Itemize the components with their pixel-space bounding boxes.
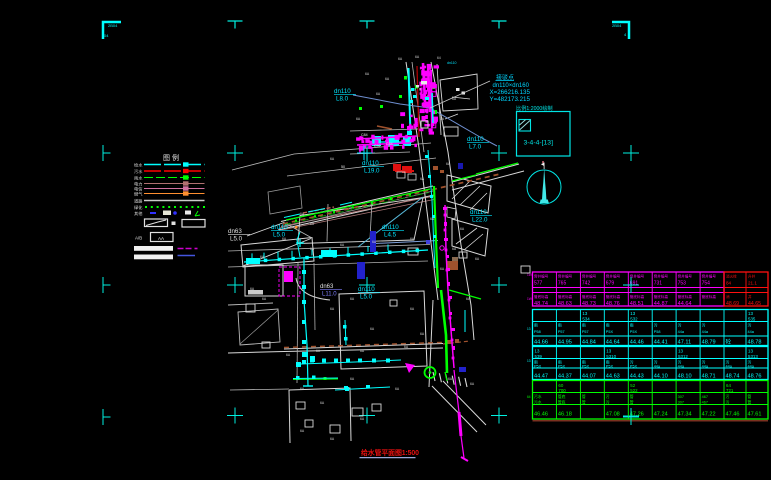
svg-text:雨: 雨 xyxy=(558,323,562,328)
svg-text:X=266216.135: X=266216.135 xyxy=(490,89,531,96)
svg-text:砼: 砼 xyxy=(726,338,732,346)
svg-text:721: 721 xyxy=(726,388,734,393)
svg-text:44a: 44a xyxy=(702,364,709,368)
svg-text:44.64: 44.64 xyxy=(606,340,620,346)
svg-text:44a: 44a xyxy=(726,364,733,368)
svg-text:13: 13 xyxy=(748,349,753,354)
svg-text:467: 467 xyxy=(702,401,708,405)
svg-text:污水: 污水 xyxy=(534,400,542,405)
svg-text:污: 污 xyxy=(606,400,610,405)
svg-text:13: 13 xyxy=(678,349,683,354)
svg-text:13: 13 xyxy=(527,359,531,363)
svg-text:48.76: 48.76 xyxy=(748,374,762,380)
svg-text:44.07: 44.07 xyxy=(582,374,596,380)
svg-text:管底标高: 管底标高 xyxy=(534,294,549,299)
svg-text:44.37: 44.37 xyxy=(558,374,572,380)
svg-text:P57: P57 xyxy=(558,330,565,334)
svg-text:管底标高: 管底标高 xyxy=(654,294,669,299)
svg-text:污: 污 xyxy=(654,323,658,328)
svg-text:6A: 6A xyxy=(250,287,255,291)
svg-text:307: 307 xyxy=(678,395,684,399)
svg-text:6A: 6A xyxy=(466,297,471,301)
svg-text:污: 污 xyxy=(748,323,752,328)
svg-text:污: 污 xyxy=(606,394,610,399)
svg-text:467: 467 xyxy=(702,395,708,399)
svg-text:48.74: 48.74 xyxy=(534,301,548,307)
svg-text:6A: 6A xyxy=(452,247,457,251)
svg-text:P5X: P5X xyxy=(534,364,542,368)
svg-text:44.65: 44.65 xyxy=(748,301,761,307)
svg-text:管底标高: 管底标高 xyxy=(702,294,717,299)
svg-text:731: 731 xyxy=(654,281,663,287)
svg-text:C92: C92 xyxy=(374,144,381,148)
svg-text:6A: 6A xyxy=(340,243,345,247)
svg-text:其他: 其他 xyxy=(134,210,143,217)
svg-text:44.84: 44.84 xyxy=(582,340,596,346)
svg-text:5310: 5310 xyxy=(606,354,616,359)
svg-text:管: 管 xyxy=(582,394,586,399)
svg-text:6A: 6A xyxy=(395,387,400,391)
svg-text:窨井编号: 窨井编号 xyxy=(582,274,597,279)
svg-text:P5X: P5X xyxy=(606,330,614,334)
svg-text:47.24: 47.24 xyxy=(654,412,668,418)
svg-text:44.46: 44.46 xyxy=(630,340,644,346)
svg-text:P57: P57 xyxy=(582,330,589,334)
svg-text:L22.0: L22.0 xyxy=(472,217,488,224)
svg-text:6A: 6A xyxy=(415,55,420,59)
svg-text:AA: AA xyxy=(158,236,164,241)
svg-text:消: 消 xyxy=(726,294,730,299)
svg-text:44.43: 44.43 xyxy=(630,374,644,380)
svg-text:522: 522 xyxy=(630,388,638,393)
svg-text:84: 84 xyxy=(726,281,732,286)
svg-text:管: 管 xyxy=(748,394,752,399)
svg-text:6A: 6A xyxy=(420,177,425,181)
svg-text:管底标高: 管底标高 xyxy=(582,294,597,299)
svg-text:6A: 6A xyxy=(398,57,403,61)
svg-text:管: 管 xyxy=(630,394,634,399)
svg-text:P5X: P5X xyxy=(630,330,638,334)
svg-text:13: 13 xyxy=(535,349,540,354)
svg-text:6A: 6A xyxy=(262,297,267,301)
svg-text:P5X: P5X xyxy=(630,364,638,368)
svg-text:577: 577 xyxy=(534,281,543,287)
svg-text:21.1: 21.1 xyxy=(748,281,757,286)
svg-text:44.63: 44.63 xyxy=(606,374,620,380)
svg-text:48.76: 48.76 xyxy=(606,301,620,307)
svg-text:1W: 1W xyxy=(527,273,532,277)
svg-text:6A: 6A xyxy=(300,212,305,216)
svg-text:47.34: 47.34 xyxy=(678,412,692,418)
svg-text:6A: 6A xyxy=(365,72,370,76)
svg-text:C84: C84 xyxy=(386,142,393,146)
svg-text:管底标高: 管底标高 xyxy=(558,294,573,299)
svg-text:44a: 44a xyxy=(702,330,709,334)
svg-text:6A: 6A xyxy=(330,157,335,161)
svg-text:6A: 6A xyxy=(350,297,355,301)
svg-text:47.22: 47.22 xyxy=(702,412,716,418)
svg-text:雨: 雨 xyxy=(606,323,610,328)
svg-text:46.46: 46.46 xyxy=(534,412,548,418)
svg-text:井: 井 xyxy=(748,294,752,299)
svg-text:6A: 6A xyxy=(430,217,435,221)
svg-text:6A: 6A xyxy=(376,92,381,96)
svg-text:6A: 6A xyxy=(470,382,475,386)
svg-text:6A: 6A xyxy=(475,257,480,261)
svg-text:48.51: 48.51 xyxy=(630,301,644,307)
svg-text:dn110: dn110 xyxy=(334,88,351,95)
svg-text:雨: 雨 xyxy=(630,323,634,328)
svg-text:3-4-4-[13]: 3-4-4-[13] xyxy=(524,140,554,147)
svg-text:管: 管 xyxy=(630,400,634,405)
svg-text:6A: 6A xyxy=(440,267,445,271)
svg-text:6A: 6A xyxy=(370,327,375,331)
svg-text:管底标高: 管底标高 xyxy=(606,294,621,299)
svg-text:升井: 升井 xyxy=(748,274,756,279)
svg-text:L4.5: L4.5 xyxy=(384,232,397,239)
svg-text:44a: 44a xyxy=(654,364,661,368)
svg-text:A/B: A/B xyxy=(135,236,142,241)
svg-text:47.61: 47.61 xyxy=(748,412,762,418)
svg-text:48.71: 48.71 xyxy=(702,374,716,380)
svg-text:6A: 6A xyxy=(460,227,465,231)
svg-text:44.47: 44.47 xyxy=(534,374,548,380)
svg-text:燃气: 燃气 xyxy=(134,191,143,198)
svg-text:679: 679 xyxy=(606,281,615,287)
svg-text:765: 765 xyxy=(558,281,567,287)
svg-text:534: 534 xyxy=(582,317,590,322)
svg-text:6A: 6A xyxy=(385,77,390,81)
svg-text:2B04: 2B04 xyxy=(612,23,622,28)
svg-text:44.66: 44.66 xyxy=(534,340,548,346)
svg-text:754: 754 xyxy=(702,281,711,287)
svg-text:Y=482173.215: Y=482173.215 xyxy=(490,96,531,103)
svg-text:44a: 44a xyxy=(678,330,685,334)
svg-text:6A: 6A xyxy=(282,237,287,241)
svg-text:44.10: 44.10 xyxy=(654,374,668,380)
svg-text:图 例: 图 例 xyxy=(163,153,179,162)
svg-text:2B04: 2B04 xyxy=(108,23,118,28)
svg-text:48.73: 48.73 xyxy=(582,301,596,307)
svg-text:1W: 1W xyxy=(527,297,532,301)
svg-text:47.46: 47.46 xyxy=(726,412,740,418)
svg-text:6A: 6A xyxy=(320,401,325,405)
svg-text:P5X: P5X xyxy=(558,364,566,368)
svg-text:6A: 6A xyxy=(360,349,365,353)
svg-text:13: 13 xyxy=(606,349,611,354)
svg-text:44.64: 44.64 xyxy=(678,301,692,307)
svg-text:管: 管 xyxy=(582,400,586,405)
svg-text:307: 307 xyxy=(678,401,684,405)
svg-text:535: 535 xyxy=(748,317,756,322)
svg-text:窨井编号: 窨井编号 xyxy=(654,274,669,279)
svg-text:48.63: 48.63 xyxy=(558,301,572,307)
svg-text:给水管平面图1:500: 给水管平面图1:500 xyxy=(361,448,419,457)
svg-text:雨: 雨 xyxy=(582,323,586,328)
svg-text:窨井编号: 窨井编号 xyxy=(534,274,549,279)
svg-text:L5.0: L5.0 xyxy=(360,294,373,301)
svg-text:48.79: 48.79 xyxy=(702,340,716,346)
svg-text:6A: 6A xyxy=(300,429,305,433)
svg-text:48.78: 48.78 xyxy=(748,340,762,346)
svg-text:P58: P58 xyxy=(654,330,661,334)
svg-text:48.10: 48.10 xyxy=(678,374,692,380)
svg-text:dn110: dn110 xyxy=(447,61,457,65)
svg-text:48.74: 48.74 xyxy=(726,374,740,380)
svg-text:雨: 雨 xyxy=(534,323,538,328)
svg-text:44a: 44a xyxy=(678,364,685,368)
svg-text:污: 污 xyxy=(726,400,730,405)
svg-text:6A: 6A xyxy=(448,377,453,381)
svg-text:6A: 6A xyxy=(410,307,415,311)
svg-text:管: 管 xyxy=(748,400,752,405)
svg-text:04: 04 xyxy=(104,33,109,38)
svg-text:窨井编号: 窨井编号 xyxy=(702,274,717,279)
svg-text:窨井编号: 窨井编号 xyxy=(558,274,573,279)
svg-text:6A: 6A xyxy=(330,307,335,311)
svg-text:47.08: 47.08 xyxy=(606,412,620,418)
svg-text:道路: 道路 xyxy=(134,198,143,205)
svg-text:6A: 6A xyxy=(310,222,315,226)
svg-text:6A: 6A xyxy=(446,162,451,166)
svg-text:L19.0: L19.0 xyxy=(364,168,380,175)
svg-text:绿化: 绿化 xyxy=(134,204,143,211)
svg-text:13: 13 xyxy=(527,327,531,331)
svg-text:L11.0: L11.0 xyxy=(322,292,337,298)
svg-text:P58: P58 xyxy=(534,330,541,334)
svg-text:管底: 管底 xyxy=(558,394,566,399)
svg-text:消火栓: 消火栓 xyxy=(726,274,737,279)
svg-text:6A: 6A xyxy=(360,417,365,421)
svg-text:6A: 6A xyxy=(350,377,355,381)
svg-text:48.69: 48.69 xyxy=(726,301,739,307)
svg-text:44.41: 44.41 xyxy=(654,340,668,346)
svg-text:窨井编号: 窨井编号 xyxy=(606,274,621,279)
svg-text:雨水: 雨水 xyxy=(134,175,143,182)
svg-text:P5X: P5X xyxy=(606,364,614,368)
svg-text:5313: 5313 xyxy=(748,354,758,359)
svg-text:污水: 污水 xyxy=(534,394,542,399)
svg-text:污: 污 xyxy=(678,323,682,328)
svg-text:700: 700 xyxy=(558,388,566,393)
svg-text:5312: 5312 xyxy=(678,354,688,359)
svg-text:管底标高: 管底标高 xyxy=(630,294,645,299)
svg-text:532: 532 xyxy=(630,317,638,322)
svg-text:污水: 污水 xyxy=(134,168,143,175)
svg-text:L8.0: L8.0 xyxy=(336,96,349,103)
svg-text:管底: 管底 xyxy=(558,400,566,405)
svg-text:64: 64 xyxy=(437,56,441,60)
svg-text:13: 13 xyxy=(582,311,587,316)
svg-text:6A: 6A xyxy=(260,255,265,259)
svg-text:6A: 6A xyxy=(286,353,291,357)
svg-text:6A: 6A xyxy=(316,349,321,353)
svg-text:50: 50 xyxy=(341,165,345,169)
svg-text:6A: 6A xyxy=(420,332,425,336)
svg-text:6A: 6A xyxy=(404,345,409,349)
svg-text:P5X: P5X xyxy=(582,364,590,368)
svg-text:窨井编号: 窨井编号 xyxy=(630,274,645,279)
svg-text:44a: 44a xyxy=(748,330,755,334)
svg-text:C84: C84 xyxy=(361,133,368,137)
svg-text:6A: 6A xyxy=(440,117,445,121)
svg-text:44.87: 44.87 xyxy=(654,301,668,307)
svg-text:给水: 给水 xyxy=(134,162,143,169)
svg-text:污: 污 xyxy=(702,323,706,328)
svg-text:64: 64 xyxy=(527,395,531,399)
svg-text:13: 13 xyxy=(748,311,753,316)
svg-text:L5.0: L5.0 xyxy=(230,236,243,243)
svg-text:6A: 6A xyxy=(356,117,361,121)
svg-text:44a: 44a xyxy=(748,364,755,368)
svg-text:742: 742 xyxy=(582,281,591,287)
svg-text:L7.0: L7.0 xyxy=(469,144,482,151)
svg-text:污: 污 xyxy=(726,394,730,399)
svg-text:753: 753 xyxy=(678,281,687,287)
svg-text:47.11: 47.11 xyxy=(678,340,692,346)
svg-text:6A: 6A xyxy=(372,240,377,244)
svg-text:管底标高: 管底标高 xyxy=(678,294,693,299)
svg-text:比例1:2000绘制: 比例1:2000绘制 xyxy=(516,104,553,112)
svg-text:539: 539 xyxy=(535,354,543,359)
svg-text:6A: 6A xyxy=(300,387,305,391)
svg-text:窨井编号: 窨井编号 xyxy=(678,274,693,279)
svg-text:46.18: 46.18 xyxy=(558,412,572,418)
svg-text:13: 13 xyxy=(630,311,635,316)
svg-text:6A: 6A xyxy=(310,247,315,251)
svg-text:6A: 6A xyxy=(330,437,335,441)
svg-text:44.95: 44.95 xyxy=(558,340,572,346)
svg-text:6A: 6A xyxy=(410,237,415,241)
